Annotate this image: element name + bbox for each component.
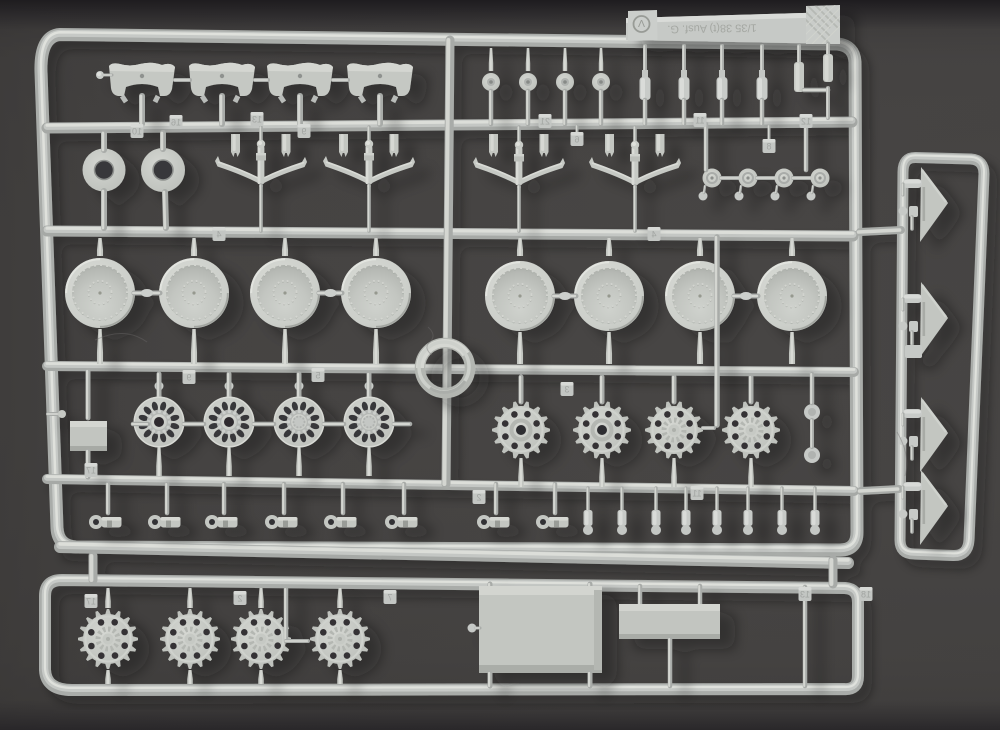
- svg-text:4: 4: [216, 230, 221, 240]
- svg-text:2: 2: [237, 594, 242, 604]
- svg-text:9: 9: [301, 127, 306, 137]
- svg-text:17: 17: [86, 597, 96, 607]
- svg-text:7: 7: [387, 593, 392, 603]
- svg-text:18: 18: [861, 590, 871, 600]
- svg-text:2: 2: [476, 493, 481, 503]
- svg-text:3: 3: [564, 385, 569, 395]
- svg-text:13: 13: [252, 115, 262, 125]
- svg-text:13: 13: [800, 590, 810, 600]
- svg-text:V: V: [638, 17, 645, 29]
- svg-text:10: 10: [132, 127, 142, 137]
- svg-text:16: 16: [171, 118, 181, 128]
- svg-text:4: 4: [651, 230, 656, 240]
- svg-text:8: 8: [766, 142, 771, 152]
- svg-text:6: 6: [574, 135, 579, 145]
- svg-text:5: 5: [315, 371, 320, 381]
- svg-text:11: 11: [695, 116, 704, 126]
- svg-text:11: 11: [692, 489, 701, 499]
- svg-text:9: 9: [186, 373, 191, 383]
- svg-text:21: 21: [540, 117, 550, 127]
- svg-text:12: 12: [801, 117, 811, 127]
- svg-text:17: 17: [86, 466, 96, 476]
- svg-text:1/35 38(t) Ausf. G.: 1/35 38(t) Ausf. G.: [667, 21, 756, 35]
